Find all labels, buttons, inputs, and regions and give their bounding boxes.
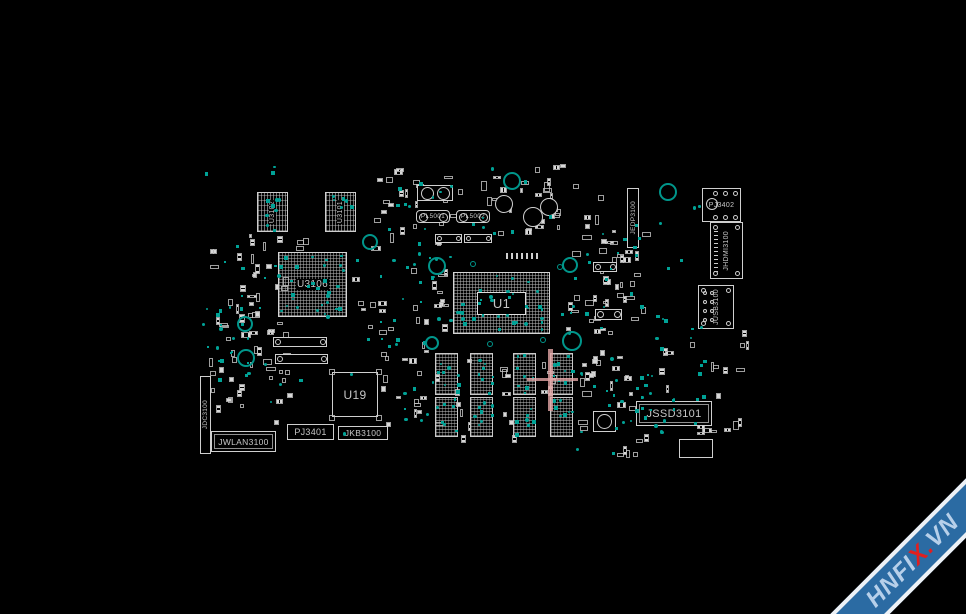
via-dot — [326, 315, 330, 319]
passive-component — [297, 240, 304, 246]
jssd3101-label: JSSD3101 — [637, 402, 711, 425]
jedp3100-label: JEDP3100 — [628, 189, 638, 247]
pj3401-label-text: PJ3401 — [293, 427, 327, 437]
via-dot — [492, 376, 494, 378]
via-dot — [340, 255, 342, 257]
via-dot — [247, 337, 249, 339]
via-dot — [523, 354, 526, 357]
passive-component — [625, 250, 634, 254]
via-dot — [290, 280, 293, 283]
via-dot — [232, 337, 235, 340]
passive-component — [500, 367, 508, 373]
passive-component — [361, 308, 366, 312]
component-bar1[interactable] — [435, 234, 462, 243]
via-dot — [641, 396, 644, 399]
passive-component — [493, 176, 501, 179]
via-dot — [426, 413, 429, 416]
via-dot — [443, 403, 446, 406]
via-dot — [241, 295, 243, 297]
via-dot — [279, 265, 282, 268]
via-dot — [311, 282, 314, 285]
passive-component — [520, 188, 523, 192]
via-dot — [491, 404, 494, 407]
passive-component — [374, 218, 381, 223]
via-dot — [580, 431, 583, 434]
passive-component — [582, 363, 586, 367]
via-dot — [526, 414, 529, 417]
via-dot — [508, 296, 511, 299]
via-dot — [420, 419, 423, 422]
via-dot — [693, 206, 697, 210]
watermark-band: HNFIX.VN — [806, 454, 966, 614]
via-dot — [622, 421, 625, 424]
passive-component — [623, 257, 631, 263]
u19-label: U19 — [333, 373, 377, 416]
passive-component — [574, 295, 580, 302]
via-dot — [586, 253, 589, 256]
via-dot — [561, 313, 565, 317]
via-dot — [264, 277, 267, 280]
via-dot — [442, 371, 444, 373]
pad-ring — [437, 236, 442, 241]
pad-ring — [614, 311, 621, 318]
passive-component — [287, 393, 293, 399]
via-dot — [455, 430, 457, 432]
component-u19[interactable]: U19 — [332, 372, 378, 417]
via-dot — [660, 347, 663, 350]
via-dot — [457, 374, 460, 377]
via-dot — [336, 285, 339, 288]
passive-component — [572, 251, 581, 256]
passive-component — [236, 304, 240, 314]
via-dot — [571, 370, 575, 374]
passive-component — [381, 386, 387, 392]
via-dot — [649, 392, 652, 395]
via-dot — [488, 392, 491, 395]
via-dot — [698, 372, 702, 376]
via-dot — [406, 266, 409, 269]
jhdmi3100-label: JHDMI3100 — [711, 223, 742, 278]
via-dot — [481, 378, 484, 381]
passive-component — [535, 193, 542, 197]
passive-component — [659, 368, 664, 375]
component-cap1[interactable] — [495, 195, 513, 213]
passive-component — [358, 301, 365, 306]
passive-component — [399, 190, 403, 197]
via-dot — [574, 277, 577, 280]
via-dot — [393, 319, 397, 323]
component-bar2[interactable] — [464, 234, 492, 243]
component-bar4[interactable] — [275, 354, 328, 364]
passive-component — [608, 331, 613, 335]
mounting-hole — [428, 257, 446, 275]
passive-component — [237, 253, 242, 261]
via-dot — [630, 420, 632, 422]
passive-component — [505, 374, 511, 378]
via-dot — [271, 204, 275, 208]
component-pl5002[interactable]: PL5002 — [456, 210, 490, 223]
via-dot — [396, 204, 399, 207]
passive-component — [432, 281, 437, 289]
via-dot — [456, 311, 460, 315]
via-dot — [482, 217, 484, 219]
via-dot — [690, 337, 692, 339]
via-dot — [245, 374, 248, 377]
pad-ring — [320, 339, 326, 345]
via-dot — [206, 308, 208, 310]
passive-component — [276, 399, 283, 404]
passive-component — [461, 435, 465, 443]
component-conn-br[interactable] — [679, 439, 713, 458]
passive-component — [634, 273, 641, 277]
passive-component — [481, 181, 487, 191]
via-dot — [449, 256, 452, 259]
passive-component — [209, 358, 214, 367]
passive-component — [612, 230, 617, 234]
via-dot — [323, 279, 327, 283]
passive-component — [582, 235, 592, 240]
passive-component — [738, 418, 742, 426]
via-dot — [515, 420, 519, 424]
passive-component — [615, 284, 619, 290]
passive-component — [740, 343, 745, 348]
component-pj3402[interactable]: PJ3402 — [702, 188, 741, 222]
via-dot — [641, 407, 644, 410]
passive-component — [625, 375, 628, 379]
passive-component — [599, 248, 607, 253]
via-dot — [241, 267, 245, 271]
via-dot — [703, 360, 706, 363]
via-dot — [680, 259, 683, 262]
via-dot — [431, 276, 434, 279]
via-dot — [491, 167, 494, 170]
component-u3101[interactable]: U3101 — [325, 192, 356, 232]
passive-component — [625, 296, 635, 299]
via-dot — [419, 182, 423, 186]
passive-component — [573, 184, 578, 189]
passive-component — [636, 439, 643, 443]
via-dot — [571, 411, 573, 413]
component-jh-coil[interactable] — [593, 411, 616, 432]
via-dot — [219, 327, 223, 331]
passive-component — [417, 410, 422, 414]
via-dot — [615, 379, 618, 382]
via-dot — [536, 290, 539, 293]
passive-component — [571, 310, 579, 313]
via-dot — [482, 314, 484, 316]
pad-ring — [275, 339, 281, 345]
component-pj3401[interactable]: PJ3401 — [287, 424, 334, 440]
via-dot — [291, 293, 295, 297]
via-dot — [452, 405, 455, 408]
passive-component — [277, 322, 283, 325]
pad-ring — [486, 236, 491, 241]
passive-component — [396, 396, 400, 399]
via-dot — [323, 264, 326, 267]
passive-component — [630, 281, 635, 287]
via-dot — [321, 304, 323, 306]
passive-component — [277, 236, 283, 243]
u19-label-text: U19 — [343, 388, 368, 402]
via-dot — [635, 409, 639, 413]
via-dot — [567, 355, 570, 358]
component-pl5001[interactable]: PL5001 — [416, 210, 450, 223]
via-dot — [563, 413, 567, 417]
via-dot — [356, 259, 359, 262]
u3101-label: U3101 — [326, 193, 355, 231]
via-dot — [259, 307, 261, 309]
via-dot — [506, 314, 508, 316]
via-dot — [279, 383, 283, 387]
passive-component — [252, 312, 260, 318]
via-dot — [404, 418, 408, 422]
via-dot — [270, 401, 272, 403]
via-dot — [273, 166, 276, 169]
pad-ring — [597, 414, 612, 429]
via-dot — [404, 203, 407, 206]
passive-component — [396, 168, 404, 172]
passive-component — [417, 371, 423, 376]
via-dot — [659, 222, 662, 225]
via-dot — [240, 308, 243, 311]
passive-component — [282, 378, 286, 383]
passive-component — [269, 376, 273, 380]
via-dot — [307, 285, 310, 288]
u3101-label-text: U3101 — [337, 200, 344, 224]
passive-component — [716, 393, 721, 399]
via-dot — [404, 408, 406, 410]
via-dot — [664, 319, 668, 323]
mounting-hole — [562, 331, 582, 351]
passive-component — [381, 210, 386, 214]
passive-component — [723, 367, 728, 374]
passive-component — [226, 398, 232, 402]
passive-component — [210, 265, 220, 269]
via-dot — [380, 321, 382, 323]
via-dot — [280, 310, 282, 312]
passive-component — [279, 370, 283, 374]
component-bar3[interactable] — [273, 337, 327, 347]
jhdmi3100-label-text: JHDMI3100 — [723, 230, 730, 272]
passive-component — [239, 384, 244, 391]
passive-component — [420, 396, 427, 401]
via-dot — [673, 408, 676, 411]
jdc3100-label-text: JDC3100 — [202, 399, 209, 430]
passive-component — [247, 295, 256, 298]
passive-component — [210, 371, 216, 376]
via-dot — [271, 171, 275, 175]
passive-component — [543, 188, 552, 193]
component-ind-a[interactable] — [417, 185, 453, 201]
via-dot — [527, 307, 529, 309]
passive-component — [578, 420, 587, 425]
passive-component — [424, 350, 429, 353]
component-bar5[interactable] — [593, 262, 617, 272]
component-bar6[interactable] — [595, 309, 622, 320]
via-dot — [654, 424, 658, 428]
pl5001-label: PL5001 — [417, 211, 449, 222]
via-dot — [523, 375, 526, 378]
component-jwlan3100[interactable]: JWLAN3100 — [211, 431, 276, 452]
passive-component — [746, 341, 749, 350]
via-dot — [472, 223, 475, 226]
via-dot — [461, 311, 464, 314]
via-dot — [326, 294, 330, 298]
via-dot — [335, 308, 338, 311]
via-dot — [437, 317, 441, 321]
via-dot — [516, 367, 519, 370]
component-u3102[interactable]: U3102 — [257, 192, 288, 232]
passive-component — [610, 381, 613, 391]
mounting-hole — [557, 264, 563, 270]
passive-component — [416, 317, 420, 324]
via-dot — [623, 238, 627, 242]
via-dot — [691, 328, 693, 330]
via-dot — [472, 317, 476, 321]
component-mem7[interactable] — [513, 397, 536, 437]
component-mem8[interactable] — [550, 397, 573, 437]
via-dot — [424, 228, 426, 230]
via-dot — [230, 352, 232, 354]
via-dot — [408, 205, 411, 208]
pad-ring — [277, 356, 283, 362]
component-cap3[interactable] — [540, 198, 558, 216]
passive-component — [585, 224, 590, 229]
passive-component — [610, 241, 618, 246]
via-dot — [367, 338, 370, 341]
component-jhdmi3100[interactable]: JHDMI3100 — [710, 222, 743, 279]
pad-ring — [321, 356, 327, 362]
passive-component — [542, 362, 546, 369]
via-dot — [338, 307, 342, 311]
via-dot — [380, 275, 382, 277]
via-dot — [443, 423, 446, 426]
via-dot — [617, 252, 619, 254]
passive-component — [266, 367, 276, 370]
mounting-hole — [425, 336, 439, 350]
passive-component — [644, 434, 650, 442]
watermark-text: HNFIX.VN — [861, 509, 966, 614]
pl5001-label-text: PL5001 — [420, 213, 446, 220]
via-dot — [572, 305, 575, 308]
via-dot — [478, 373, 481, 376]
passive-component — [379, 330, 387, 335]
via-dot — [480, 299, 482, 301]
via-dot — [647, 374, 650, 377]
via-dot — [461, 317, 465, 321]
passive-component — [629, 392, 633, 396]
via-dot — [640, 305, 644, 309]
watermark-ribbon: HNFIX.VN — [766, 414, 966, 614]
passive-component — [557, 225, 560, 231]
component-jusb3100[interactable]: JUSB3100 — [698, 285, 734, 329]
passive-component — [211, 388, 215, 394]
passive-component — [697, 432, 705, 435]
passive-component — [249, 234, 252, 239]
passive-component — [666, 385, 670, 393]
passive-component — [385, 356, 389, 361]
via-dot — [220, 324, 222, 326]
jkb3100-label: JKB3100 — [339, 427, 387, 439]
passive-component — [424, 319, 429, 325]
passive-component — [440, 299, 445, 303]
passive-component — [379, 309, 385, 313]
pad-ring — [597, 311, 604, 318]
passive-component — [612, 366, 620, 371]
via-dot — [564, 381, 567, 384]
via-dot — [559, 399, 562, 402]
passive-component — [600, 350, 605, 356]
via-dot — [345, 199, 348, 202]
via-dot — [698, 205, 700, 207]
via-dot — [350, 205, 353, 208]
passive-component — [601, 239, 607, 245]
via-dot — [630, 292, 634, 296]
via-dot — [216, 313, 220, 317]
passive-component — [249, 302, 254, 306]
passive-component — [633, 452, 638, 457]
jwlan3100-label-text: JWLAN3100 — [217, 437, 269, 447]
passive-component — [388, 327, 394, 331]
via-dot — [552, 399, 556, 403]
selection-crosshair-horizontal — [527, 378, 578, 382]
jwlan3100-label: JWLAN3100 — [212, 432, 275, 451]
via-dot — [700, 364, 703, 367]
via-dot — [491, 414, 494, 417]
component-jssd3101[interactable]: JSSD3101 — [636, 401, 712, 426]
via-dot — [615, 427, 618, 430]
via-dot — [588, 261, 591, 264]
via-dot — [395, 343, 398, 346]
via-dot — [398, 187, 402, 191]
jedp3100-label-text: JEDP3100 — [630, 200, 637, 235]
via-dot — [644, 384, 648, 388]
passive-component — [595, 215, 600, 225]
passive-component — [296, 246, 304, 252]
jusb3100-label: JUSB3100 — [699, 286, 733, 328]
component-u1[interactable]: U1 — [453, 272, 550, 334]
via-dot — [402, 298, 404, 300]
passive-component — [411, 268, 416, 274]
via-dot — [343, 432, 346, 435]
via-dot — [403, 392, 406, 395]
passive-component — [444, 176, 452, 179]
component-pinrow1[interactable] — [506, 253, 540, 259]
pl5002-label: PL5002 — [457, 211, 489, 222]
passive-component — [724, 428, 731, 432]
via-dot — [512, 321, 516, 325]
via-dot — [432, 196, 435, 199]
via-dot — [570, 312, 572, 314]
passive-component — [229, 377, 234, 383]
via-dot — [229, 306, 232, 309]
component-jdc3100[interactable]: JDC3100 — [200, 376, 211, 454]
via-dot — [613, 394, 616, 397]
passive-component — [414, 399, 419, 404]
mounting-hole — [237, 316, 253, 332]
mounting-hole — [562, 257, 578, 273]
component-mem1[interactable] — [435, 353, 458, 395]
via-dot — [644, 416, 648, 420]
via-dot — [636, 387, 640, 391]
via-dot — [299, 379, 303, 383]
via-dot — [247, 372, 250, 375]
via-dot — [605, 278, 608, 281]
passive-component — [589, 373, 594, 379]
via-dot — [392, 259, 396, 263]
passive-component — [377, 178, 383, 183]
passive-component — [409, 358, 418, 364]
